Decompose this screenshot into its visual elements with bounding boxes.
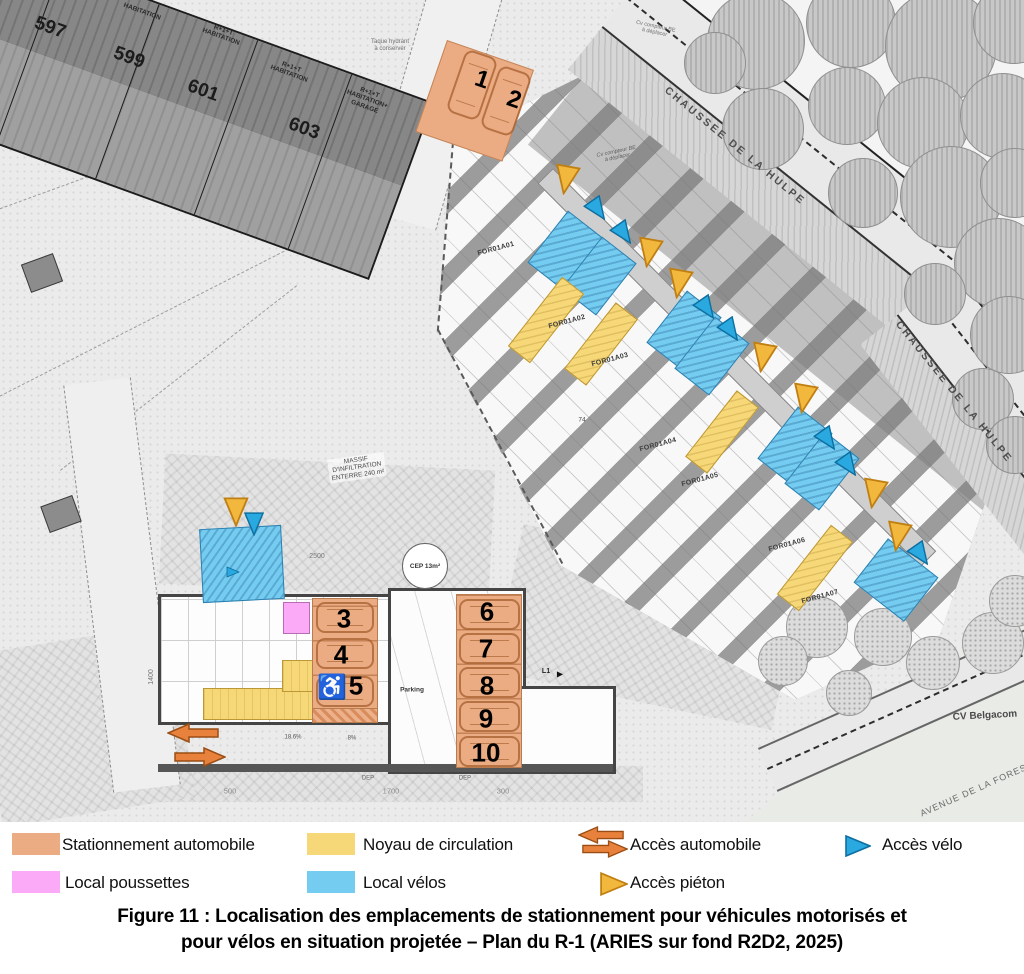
feature-layer: 12345678910FOR01A01FOR01A02FOR01A03FOR01… [0,0,1024,822]
legend-swatch-bike [307,871,355,893]
dep-label: DEP [459,776,471,783]
pedestrian-access-icon [551,163,581,197]
legend-label: Accès piéton [630,873,725,893]
legend-label: Local poussettes [65,873,189,893]
parking-spot-number: 7 [479,634,493,665]
unit-label: FOR01A01 [477,241,515,258]
pedestrian-access-icon [789,382,819,416]
figure-caption-line2: pour vélos en situation projetée – Plan … [0,932,1024,954]
pedestrian-access-icon [600,872,628,901]
unit-label: FOR01A06 [768,537,806,554]
figure-11-parking-plan: CEP 13m² 12345678910FOR01A01FOR01A02FOR0… [0,0,1024,974]
dep-label: DEP [362,776,374,783]
legend-label: Stationnement automobile [62,835,255,855]
house-label: HABITATION [122,2,161,22]
dim-500: 500 [224,788,237,797]
bike-access-icon [845,835,871,862]
l1-label: L1 [542,668,550,676]
house-number: 597 [31,12,68,43]
dim-74: 74 [578,416,585,423]
legend-swatch-parking [12,833,60,855]
house-number: 603 [285,113,322,144]
site-plan-canvas: CEP 13m² 12345678910FOR01A01FOR01A02FOR0… [0,0,1024,822]
car-access-arrow-icon [174,747,226,767]
parking-spot-number: 10 [472,738,501,769]
note-taque-hydrant: Taque hydrant à conserver [371,39,409,53]
dim-1700: 1700 [383,788,400,797]
parking-spot-number: 4 [334,640,348,671]
legend-label: Accès automobile [630,835,761,855]
legend-label: Accès vélo [882,835,962,855]
house-label: R+1+T HABITATION+ GARAGE [343,82,391,118]
house-number: 599 [110,42,147,73]
handicap-icon: ♿ [317,674,347,702]
slope-label: 18.6% [284,735,301,742]
parking-spot-number: 9 [479,704,493,735]
parking-spot-number: 3 [337,604,351,635]
dim-1400: 1400 [148,669,156,685]
car-access-arrow-icon [167,723,219,743]
bike-access-icon [227,567,240,578]
dim-2500: 2500 [309,553,325,561]
house-number: 601 [184,75,221,106]
unit-label: FOR01A05 [681,472,719,489]
dim-300: 300 [497,788,510,797]
circulation-core [685,390,759,473]
legend-swatch-stroller [12,871,60,893]
parking-spot-number: 8 [480,671,494,702]
slope-label: 8% [348,736,357,743]
pedestrian-access-icon [634,236,664,270]
bike-room [199,525,285,603]
bike-access-icon [244,512,264,536]
house-label: R+1+T HABITATION [201,20,243,47]
pedestrian-access-icon [859,477,889,511]
circulation-core [564,302,638,385]
pedestrian-access-icon [748,341,778,375]
legend-label: Noyau de circulation [363,835,513,855]
legend-swatch-core [307,833,355,855]
legend-label: Local vélos [363,873,446,893]
parking-text: Parking [400,686,424,693]
car-access-icon [578,826,628,864]
pedestrian-access-icon [664,267,694,301]
l1-arrow-icon: ▶ [557,669,563,678]
house-label: R+1+T HABITATION [269,57,311,84]
parking-spot-number: 6 [480,597,494,628]
figure-caption-line1: Figure 11 : Localisation des emplacement… [0,906,1024,928]
bike-access-icon [583,194,613,225]
unit-label: FOR01A04 [639,437,677,454]
parking-spot-number: 5 [349,671,363,702]
